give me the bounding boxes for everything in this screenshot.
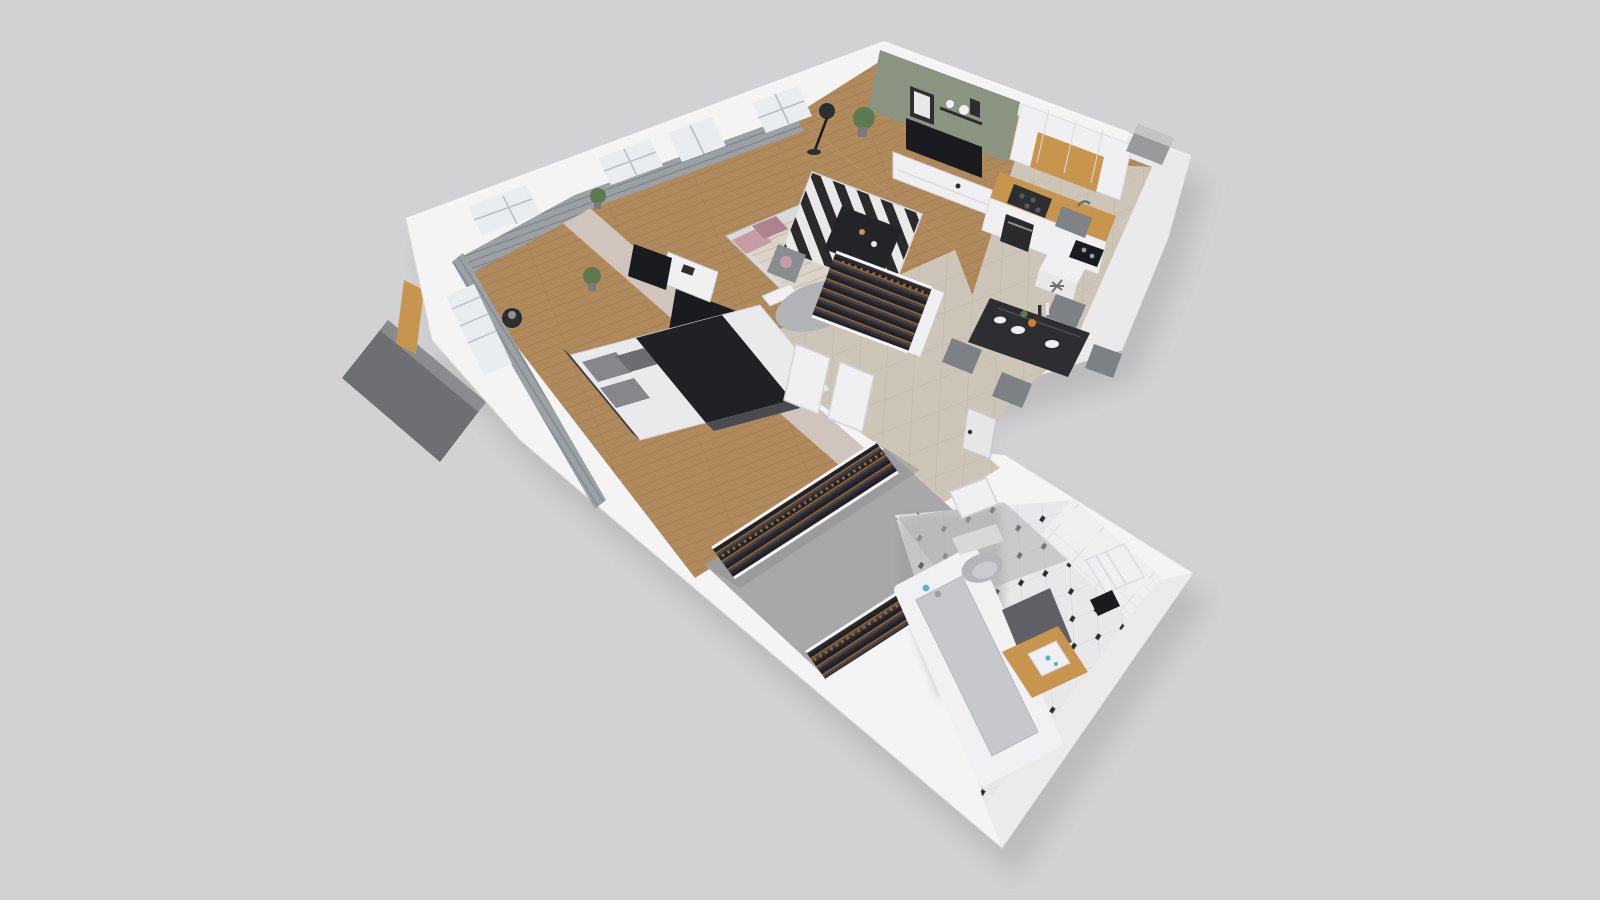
floor-plan-render: 3D isometric cutaway floor plan render o… [0, 0, 1600, 900]
floor-plan-stage: 3D isometric cutaway floor plan render o… [0, 0, 1600, 900]
tub-faucet [935, 591, 941, 597]
door-handle [968, 430, 972, 434]
bottle [1038, 305, 1041, 318]
blue-towel [923, 585, 930, 592]
fruit-bowl [1028, 319, 1036, 327]
bottle [1046, 303, 1049, 315]
